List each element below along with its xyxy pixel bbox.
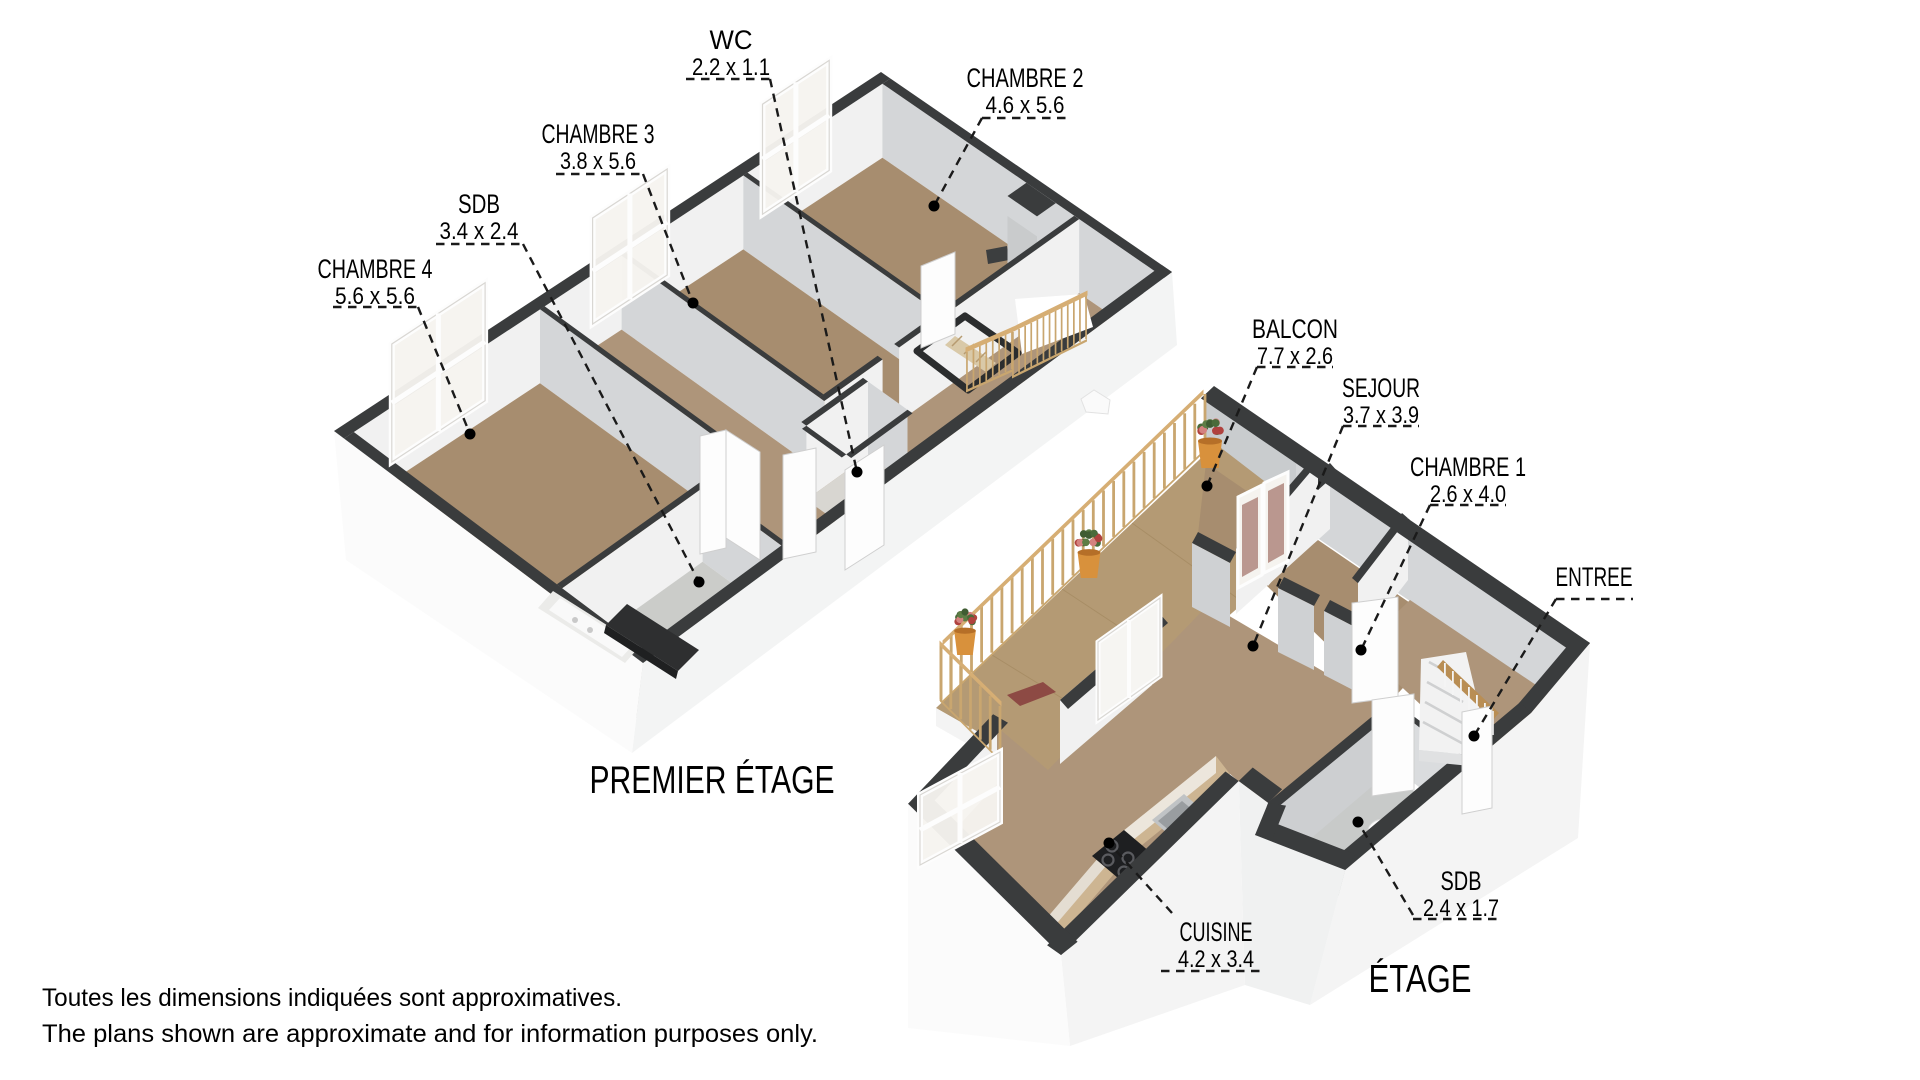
svg-text:PREMIER ÉTAGE: PREMIER ÉTAGE [590, 759, 835, 802]
svg-text:WC: WC [710, 25, 753, 55]
svg-text:5.6 x 5.6: 5.6 x 5.6 [335, 283, 415, 310]
svg-text:3.4 x 2.4: 3.4 x 2.4 [440, 218, 519, 245]
svg-text:4.2 x 3.4: 4.2 x 3.4 [1178, 946, 1254, 973]
svg-text:CUISINE: CUISINE [1180, 917, 1253, 947]
svg-text:CHAMBRE 2: CHAMBRE 2 [967, 63, 1084, 93]
svg-text:SDB: SDB [1441, 866, 1482, 896]
svg-text:2.2 x 1.1: 2.2 x 1.1 [692, 54, 770, 81]
svg-text:3.8 x 5.6: 3.8 x 5.6 [560, 148, 636, 175]
svg-text:ENTREE: ENTREE [1556, 562, 1633, 592]
svg-text:SDB: SDB [458, 189, 500, 219]
svg-text:ÉTAGE: ÉTAGE [1369, 958, 1472, 1001]
svg-text:CHAMBRE 3: CHAMBRE 3 [542, 119, 655, 149]
svg-text:BALCON: BALCON [1252, 314, 1338, 344]
svg-text:CHAMBRE 1: CHAMBRE 1 [1410, 452, 1526, 482]
svg-text:SEJOUR: SEJOUR [1342, 373, 1420, 403]
svg-text:Toutes les dimensions indiquée: Toutes les dimensions indiquées sont app… [42, 984, 622, 1012]
svg-text:The plans shown are approximat: The plans shown are approximate and for … [42, 1020, 818, 1048]
svg-text:CHAMBRE 4: CHAMBRE 4 [318, 254, 433, 284]
svg-text:4.6 x 5.6: 4.6 x 5.6 [986, 92, 1065, 119]
